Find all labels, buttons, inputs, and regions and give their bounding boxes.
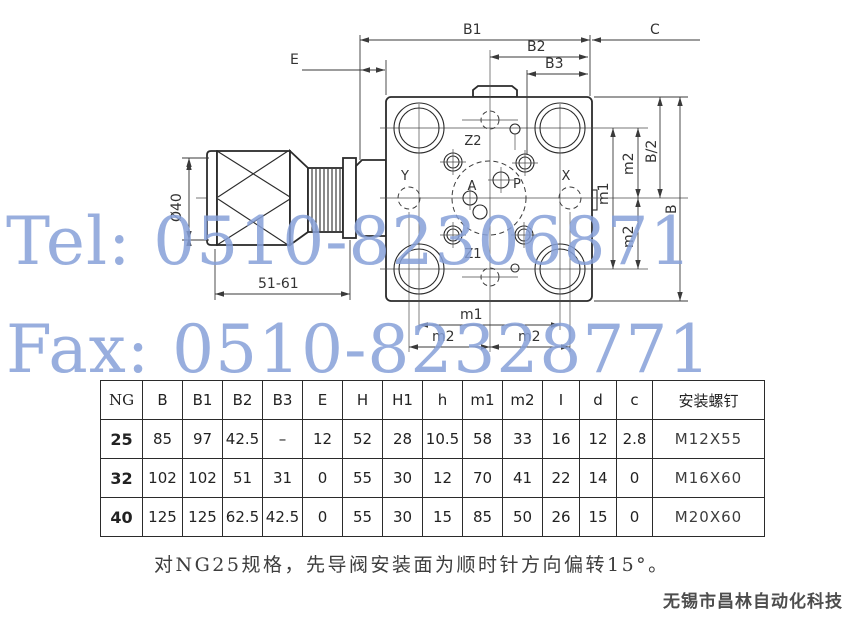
- cell: 10.5: [423, 420, 463, 459]
- knob-taper: [290, 151, 308, 245]
- col-header: B1: [183, 381, 223, 420]
- cell: 125: [143, 498, 183, 537]
- cell: 52: [343, 420, 383, 459]
- cell: 55: [343, 459, 383, 498]
- cell: 12: [580, 420, 617, 459]
- table-row: 25 85 97 42.5 – 12 52 28 10.5 58 33 16 1…: [101, 420, 765, 459]
- z2-label: Z2: [464, 134, 481, 149]
- b2-label: B2: [527, 39, 546, 55]
- cell: 70: [463, 459, 503, 498]
- cell: 85: [143, 420, 183, 459]
- col-header: h: [423, 381, 463, 420]
- table-row: 40 125 125 62.5 42.5 0 55 30 15 85 50 26…: [101, 498, 765, 537]
- col-header: B3: [263, 381, 303, 420]
- dimension-table: NG B B1 B2 B3 E H H1 h m1 m2 I d c 安装螺钉 …: [100, 380, 765, 537]
- cell: 32: [101, 459, 143, 498]
- company-name: 无锡市昌林自动化科技: [663, 587, 843, 612]
- cell: 16: [543, 420, 580, 459]
- cell: 12: [303, 420, 343, 459]
- col-header: c: [617, 381, 653, 420]
- cell: 51: [223, 459, 263, 498]
- cell: 33: [503, 420, 543, 459]
- e-label: E: [290, 52, 299, 68]
- knob-body: [217, 151, 290, 245]
- m2-right-lower-label: m2: [621, 225, 637, 248]
- z1-label: Z1: [464, 247, 481, 262]
- cell: 22: [543, 459, 580, 498]
- table-header-row: NG B B1 B2 B3 E H H1 h m1 m2 I d c 安装螺钉: [101, 381, 765, 420]
- x-label: X: [562, 169, 571, 184]
- cell: 42.5: [263, 498, 303, 537]
- cell: 15: [580, 498, 617, 537]
- cell: 97: [183, 420, 223, 459]
- col-header: 安装螺钉: [653, 381, 765, 420]
- cell: 55: [343, 498, 383, 537]
- cell: 28: [383, 420, 423, 459]
- cell: 31: [263, 459, 303, 498]
- stem: [343, 158, 356, 238]
- a-label: A: [468, 179, 477, 194]
- col-header: E: [303, 381, 343, 420]
- cell: 0: [303, 459, 343, 498]
- cell: 40: [101, 498, 143, 537]
- c-label: C: [650, 22, 660, 38]
- adjustment-knob: [207, 151, 386, 245]
- dia40-label: Ø40: [169, 193, 185, 222]
- cell: M20X60: [653, 498, 765, 537]
- col-header: B: [143, 381, 183, 420]
- col-header: NG: [101, 381, 143, 420]
- m2-bottom-left-label: m2: [432, 329, 455, 345]
- valve-dimension-drawing: Ø40 51-61: [0, 0, 850, 378]
- cell: 26: [543, 498, 580, 537]
- m2-right-upper-label: m2: [621, 152, 637, 175]
- col-header: m2: [503, 381, 543, 420]
- b3-label: B3: [545, 56, 564, 72]
- cell: 0: [617, 459, 653, 498]
- cell: 50: [503, 498, 543, 537]
- cell: 15: [423, 498, 463, 537]
- cell: 30: [383, 498, 423, 537]
- datasheet-page: Ø40 51-61: [0, 0, 850, 619]
- body-outline: [386, 97, 592, 301]
- ng25-note: 对NG25规格，先导阀安装面为顺时针方向偏转15°。: [154, 550, 670, 577]
- cell: M16X60: [653, 459, 765, 498]
- dimension-dia40: Ø40: [169, 158, 209, 240]
- p-label: P: [513, 177, 521, 192]
- cell: 0: [303, 498, 343, 537]
- travel-label: 51-61: [258, 276, 299, 292]
- cell: 0: [617, 498, 653, 537]
- thread-section: [308, 168, 343, 232]
- cell: 85: [463, 498, 503, 537]
- cell: 30: [383, 459, 423, 498]
- m2-bottom-right-label: m2: [518, 329, 541, 345]
- top-tab: [473, 86, 517, 97]
- cell: 102: [143, 459, 183, 498]
- col-header: B2: [223, 381, 263, 420]
- cell: 25: [101, 420, 143, 459]
- cell: 14: [580, 459, 617, 498]
- cell: 58: [463, 420, 503, 459]
- cell: 102: [183, 459, 223, 498]
- cell: 2.8: [617, 420, 653, 459]
- m1-right-label: m1: [596, 182, 612, 205]
- cell: –: [263, 420, 303, 459]
- y-label: Y: [400, 169, 409, 184]
- col-header: m1: [463, 381, 503, 420]
- b-label: B: [664, 204, 680, 214]
- bottom-dimensions: m1 m2 m2: [409, 307, 570, 347]
- table-row: 32 102 102 51 31 0 55 30 12 70 41 22 14 …: [101, 459, 765, 498]
- cell: M12X55: [653, 420, 765, 459]
- col-header: d: [580, 381, 617, 420]
- cell: 42.5: [223, 420, 263, 459]
- right-dimensions: m1 m2 B/2 m2 B: [594, 97, 688, 301]
- col-header: I: [543, 381, 580, 420]
- knob-cap: [207, 151, 217, 245]
- b1-label: B1: [463, 22, 482, 38]
- b-half-label: B/2: [644, 140, 660, 163]
- cell: 62.5: [223, 498, 263, 537]
- dimension-travel: 51-61: [215, 240, 350, 300]
- valve-body: Z2 Y X: [380, 50, 688, 352]
- col-header: H: [343, 381, 383, 420]
- m1-bottom-label: m1: [460, 307, 483, 323]
- col-header: H1: [383, 381, 423, 420]
- cell: 41: [503, 459, 543, 498]
- cell: 12: [423, 459, 463, 498]
- cell: 125: [183, 498, 223, 537]
